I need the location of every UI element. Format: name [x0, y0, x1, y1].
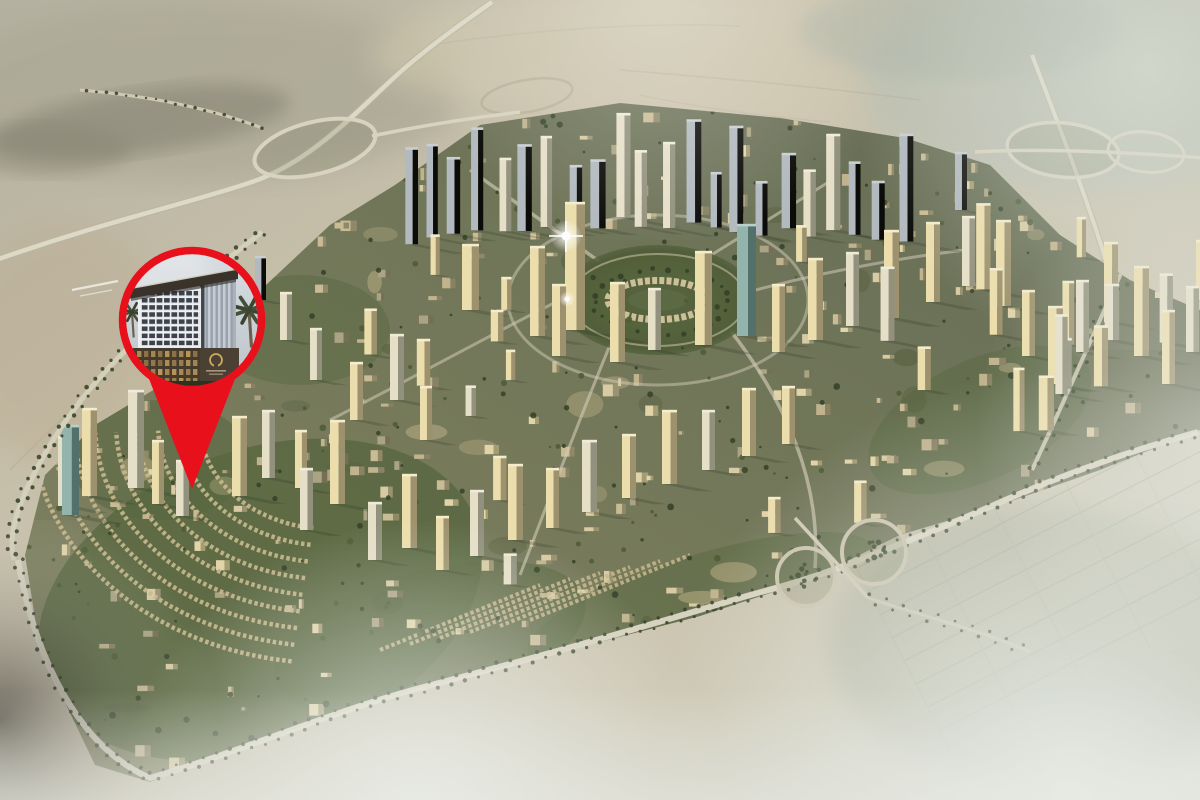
lit-window: [179, 360, 183, 366]
palm-crown: [246, 307, 252, 313]
lit-window: [151, 351, 155, 357]
lit-window: [179, 351, 183, 357]
lit-window: [193, 360, 197, 366]
window-stripe: [206, 281, 208, 349]
lit-window: [165, 351, 169, 357]
lit-window: [165, 360, 169, 366]
palm-crown: [130, 310, 134, 314]
window-stripe: [231, 281, 233, 349]
window-stripe: [211, 281, 213, 349]
lit-window: [172, 351, 176, 357]
lit-window: [193, 369, 197, 375]
lit-window: [158, 351, 162, 357]
lit-window: [144, 360, 148, 366]
lit-window: [186, 351, 190, 357]
lit-window: [137, 351, 141, 357]
lit-window: [144, 351, 148, 357]
lit-window: [172, 369, 176, 375]
lit-window: [151, 360, 155, 366]
aerial-map-view: [0, 0, 1200, 800]
lit-window: [186, 360, 190, 366]
window-stripe: [221, 281, 223, 349]
lit-window: [158, 369, 162, 375]
lit-window: [172, 360, 176, 366]
window-stripe: [216, 281, 218, 349]
lit-window: [158, 360, 162, 366]
masterplan-render: [0, 0, 1200, 800]
lit-window: [179, 369, 183, 375]
lit-window: [186, 369, 190, 375]
lit-window: [193, 351, 197, 357]
lit-window: [165, 369, 169, 375]
window-stripe: [226, 281, 228, 349]
